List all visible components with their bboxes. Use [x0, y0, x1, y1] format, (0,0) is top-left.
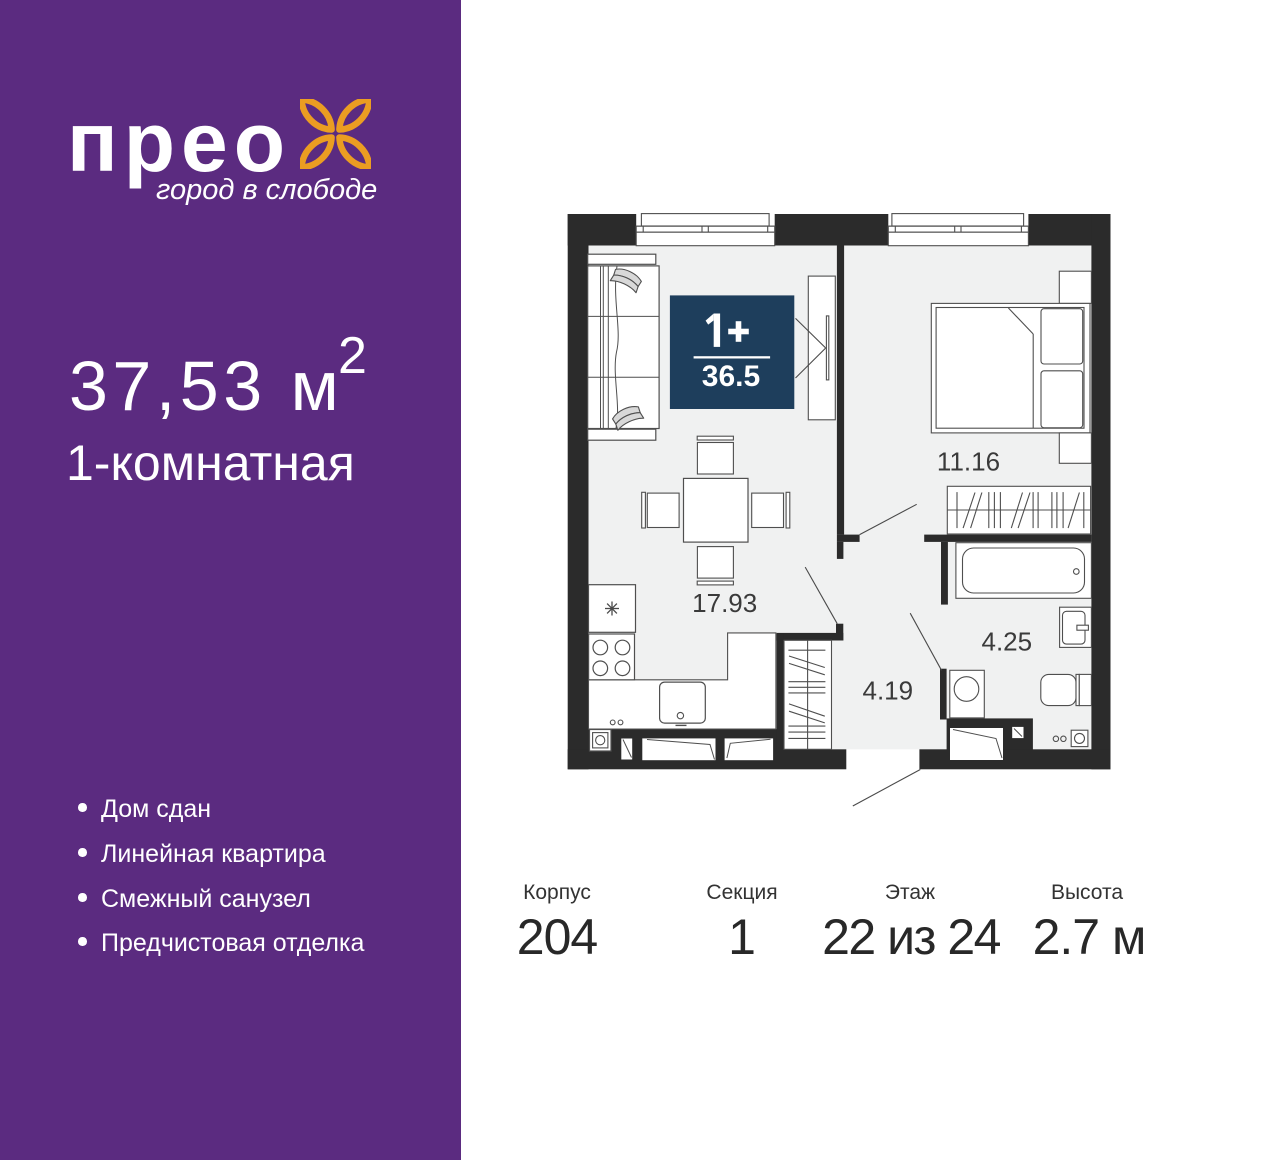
svg-text:17.93: 17.93	[692, 588, 757, 618]
svg-text:4.19: 4.19	[862, 675, 913, 705]
svg-text:4.25: 4.25	[981, 626, 1032, 656]
svg-text:36.5: 36.5	[702, 360, 760, 393]
svg-text:11.16: 11.16	[937, 447, 1000, 477]
